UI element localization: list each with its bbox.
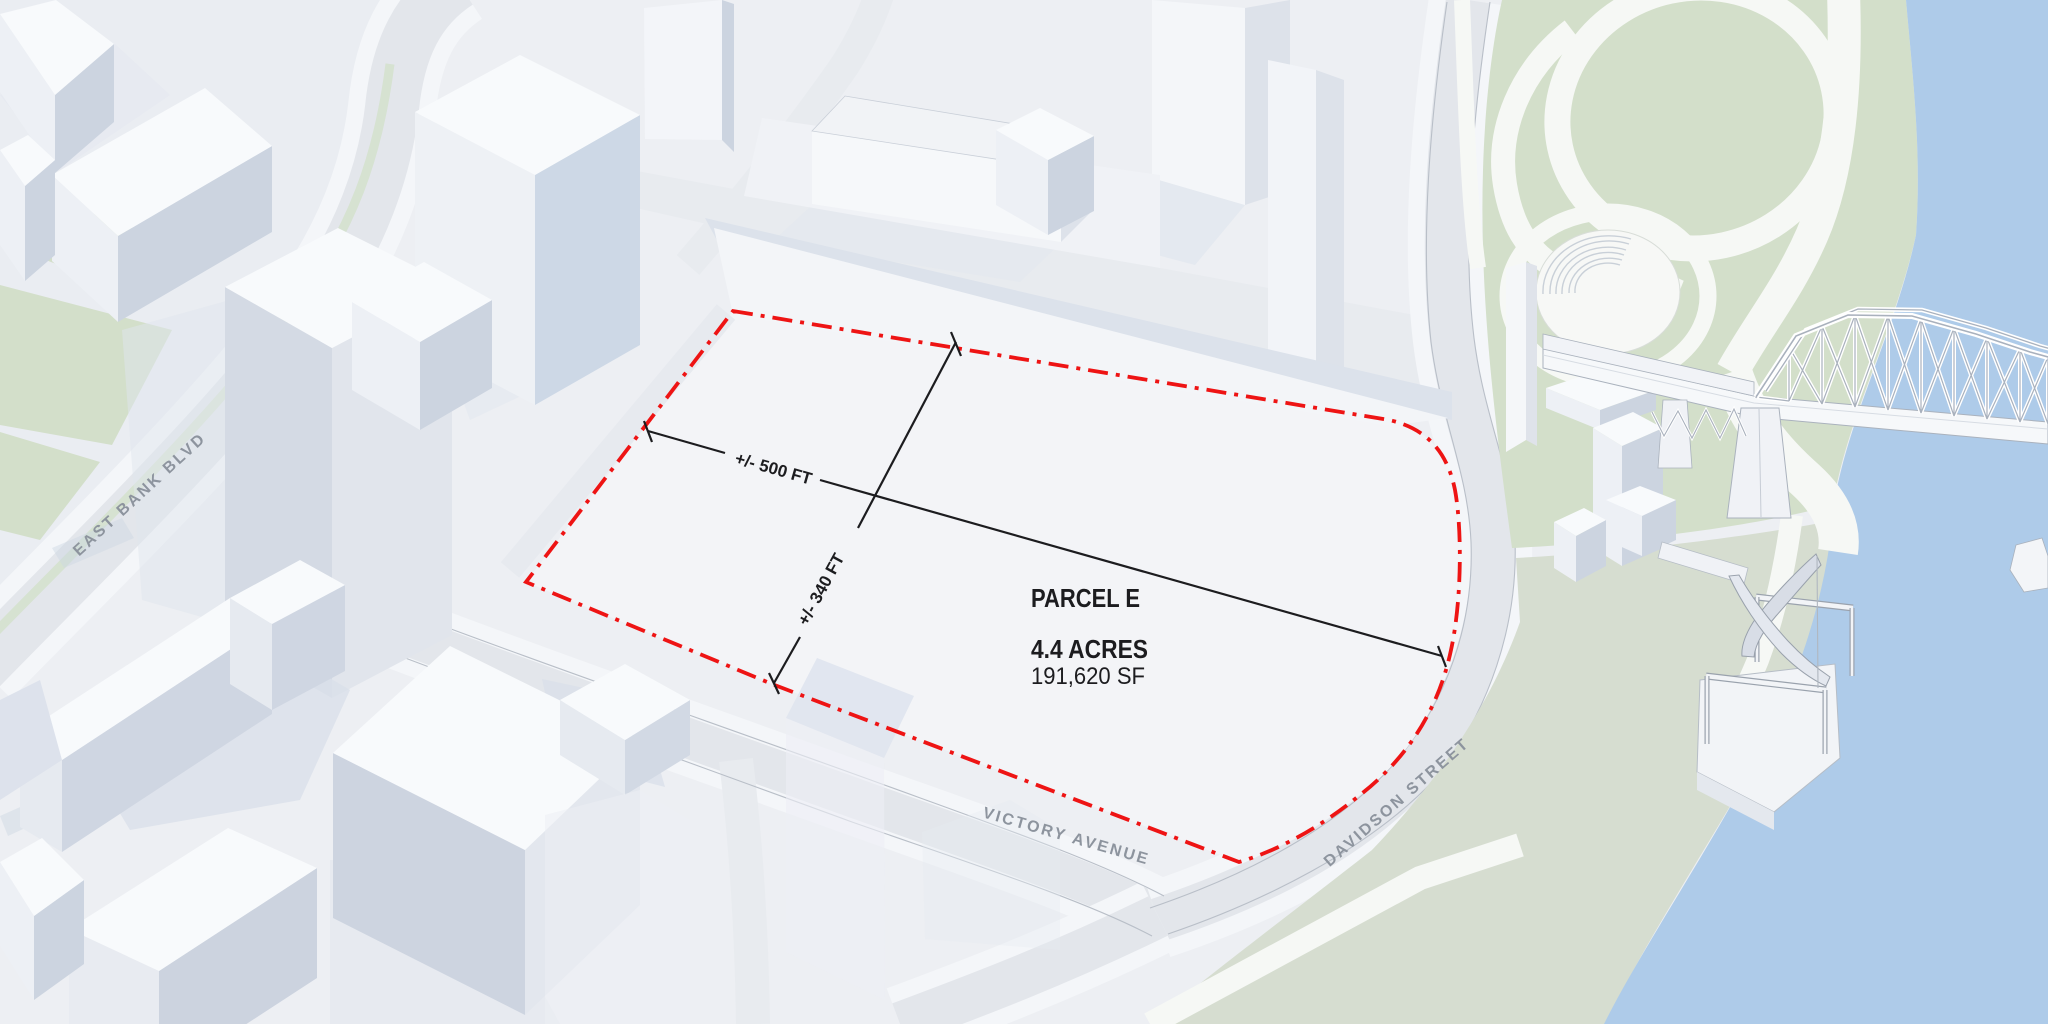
svg-text:191,620 SF: 191,620 SF	[1031, 663, 1145, 690]
svg-text:4.4 ACRES: 4.4 ACRES	[1031, 634, 1148, 664]
svg-text:PARCEL E: PARCEL E	[1031, 585, 1140, 613]
